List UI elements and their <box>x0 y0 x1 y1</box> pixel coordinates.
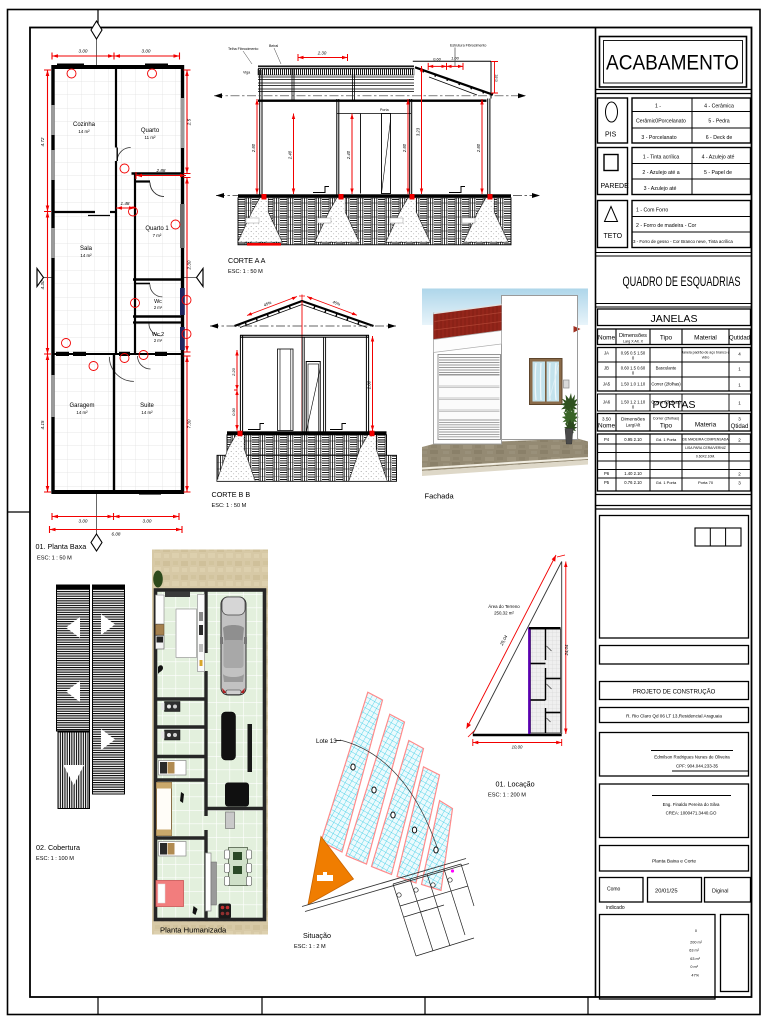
svg-text:Cozinha: Cozinha <box>73 122 96 128</box>
svg-text:ESC: 1 : 50 M: ESC: 1 : 50 M <box>228 269 263 275</box>
svg-text:ESC: 1 : 100 M: ESC: 1 : 100 M <box>36 856 74 862</box>
svg-text:Tipo: Tipo <box>660 335 673 342</box>
svg-text:14 m²: 14 m² <box>76 410 88 415</box>
svg-text:7 m²: 7 m² <box>153 233 162 238</box>
svg-text:Janela padrão de aço branco e: Janela padrão de aço branco e <box>681 351 729 355</box>
svg-text:0.60: 0.60 <box>433 57 442 62</box>
svg-text:DE MADEIRA COMPENSADA: DE MADEIRA COMPENSADA <box>683 438 730 442</box>
svg-text:2.80: 2.80 <box>402 143 407 153</box>
svg-text:ESC: 1 : 200 M: ESC: 1 : 200 M <box>488 793 526 799</box>
svg-text:63 m²: 63 m² <box>690 957 700 961</box>
svg-text:P4: P4 <box>604 437 610 442</box>
svg-text:PIS: PIS <box>605 132 617 139</box>
svg-text:Beiral: Beiral <box>269 44 278 48</box>
svg-text:5 - Pedra: 5 - Pedra <box>708 119 729 125</box>
svg-text:Quarto: Quarto <box>141 128 160 134</box>
svg-text:Correr (2folhas): Correr (2folhas) <box>651 382 681 387</box>
svg-text:Gd. 1 Porta: Gd. 1 Porta <box>656 480 677 485</box>
svg-text:Sala: Sala <box>80 246 93 252</box>
svg-text:JA5: JA5 <box>603 382 611 387</box>
svg-text:PAREDE: PAREDE <box>601 183 630 190</box>
svg-text:Planta Humanizada: Planta Humanizada <box>160 926 227 935</box>
svg-text:14 m²: 14 m² <box>78 129 90 134</box>
svg-text:ESC: 1 : 50 M: ESC: 1 : 50 M <box>212 503 247 509</box>
svg-text:1.50 1.0 1.10: 1.50 1.0 1.10 <box>621 382 646 387</box>
svg-text:3.00: 3.00 <box>79 49 88 54</box>
svg-text:01. Planta Baxa: 01. Planta Baxa <box>36 542 87 551</box>
svg-text:2.80: 2.80 <box>476 143 481 153</box>
svg-text:3.23: 3.23 <box>416 127 421 136</box>
svg-text:4 - Azulejo até: 4 - Azulejo até <box>702 155 735 161</box>
svg-text:0.81: 0.81 <box>495 74 499 81</box>
svg-text:20/01/25: 20/01/25 <box>655 889 678 895</box>
svg-text:R. Rio Claro Qd 06 LT 13,Resi: R. Rio Claro Qd 06 LT 13,Residencial Ara… <box>626 714 722 719</box>
svg-text:6 - Deck de: 6 - Deck de <box>706 135 733 141</box>
svg-text:Qutidad: Qutidad <box>729 336 750 342</box>
svg-text:2.80: 2.80 <box>367 380 372 390</box>
svg-text:CORTE B B: CORTE B B <box>212 490 251 499</box>
svg-text:JANELAS: JANELAS <box>651 313 698 325</box>
svg-text:Correr (2folhas): Correr (2folhas) <box>653 417 680 421</box>
svg-text:5 - Papel de: 5 - Papel de <box>704 170 732 176</box>
svg-text:Larg/Alt: Larg/Alt <box>626 423 641 428</box>
svg-text:1.40 2.10: 1.40 2.10 <box>624 471 642 476</box>
svg-text:Diginal: Diginal <box>712 889 728 895</box>
svg-text:2.40: 2.40 <box>346 150 351 160</box>
svg-text:Como: Como <box>607 887 621 893</box>
svg-text:2.30: 2.30 <box>317 51 327 56</box>
svg-text:1 - Tinta acrílica: 1 - Tinta acrílica <box>643 155 680 161</box>
svg-text:0.60X2.10M.: 0.60X2.10M. <box>696 455 715 459</box>
svg-text:PROJETO DE CONSTRUÇÃO: PROJETO DE CONSTRUÇÃO <box>633 689 716 696</box>
svg-text:2.88: 2.88 <box>156 168 166 173</box>
svg-text:CPF: 904.044.233-35: CPF: 904.044.233-35 <box>676 764 719 769</box>
svg-text:Tipo: Tipo <box>660 423 673 430</box>
svg-text:4.30: 4.30 <box>40 280 45 289</box>
svg-text:P5: P5 <box>604 480 610 485</box>
svg-text:2 m²: 2 m² <box>154 338 163 343</box>
svg-text:11 m²: 11 m² <box>145 135 156 140</box>
svg-text:2.30: 2.30 <box>187 260 192 270</box>
svg-text:24,04: 24,04 <box>564 644 569 656</box>
svg-text:02. Cobertura: 02. Cobertura <box>36 843 80 852</box>
svg-text:1.00: 1.00 <box>451 56 460 61</box>
svg-text:4.15: 4.15 <box>40 420 45 429</box>
svg-text:1 -: 1 - <box>655 104 661 110</box>
svg-text:1.48: 1.48 <box>121 201 130 206</box>
svg-text:Quarto 1: Quarto 1 <box>145 226 169 232</box>
svg-text:63 m²: 63 m² <box>689 949 699 953</box>
svg-text:0 m²: 0 m² <box>690 965 698 969</box>
svg-text:ACABAMENTO: ACABAMENTO <box>606 51 739 75</box>
svg-text:ESC: 1 : 50 M: ESC: 1 : 50 M <box>37 556 72 562</box>
svg-text:14 m²: 14 m² <box>141 410 153 415</box>
svg-text:01. Locação: 01. Locação <box>496 780 535 789</box>
svg-text:JB: JB <box>604 366 609 371</box>
svg-text:6.08: 6.08 <box>112 532 121 537</box>
svg-text:2.40: 2.40 <box>288 150 293 160</box>
svg-text:10,00: 10,00 <box>512 745 523 750</box>
svg-text:0.90: 0.90 <box>231 407 236 416</box>
svg-text:0.76 2.10: 0.76 2.10 <box>624 480 642 485</box>
svg-text:QUADRO DE ESQUADRIAS: QUADRO DE ESQUADRIAS <box>623 274 741 289</box>
svg-text:Área do Terreno: Área do Terreno <box>488 604 520 609</box>
svg-text:Basculante: Basculante <box>656 366 677 371</box>
svg-text:200 m²: 200 m² <box>690 941 703 945</box>
svg-text:3.50: 3.50 <box>602 417 611 422</box>
svg-text:Cerâmic0Porcelanato: Cerâmic0Porcelanato <box>636 119 686 125</box>
svg-text:Viga: Viga <box>243 71 250 75</box>
svg-text:3.00: 3.00 <box>142 49 151 54</box>
svg-text:Eng. Finaldo Pereira do Silva: Eng. Finaldo Pereira do Silva <box>663 802 720 807</box>
svg-text:2.5: 2.5 <box>187 118 192 126</box>
svg-text:2.20: 2.20 <box>231 367 236 377</box>
svg-text:14 m²: 14 m² <box>80 253 92 258</box>
svg-text:indicado: indicado <box>606 905 625 911</box>
svg-text:3.00: 3.00 <box>143 519 152 524</box>
svg-text:JA6: JA6 <box>603 400 611 405</box>
svg-text:Material: Material <box>694 335 717 342</box>
svg-text:Gd. 1 Porta: Gd. 1 Porta <box>656 437 677 442</box>
svg-text:7.30: 7.30 <box>187 419 192 428</box>
svg-text:Porta: Porta <box>380 108 389 112</box>
svg-text:Planta Baixa e Corte: Planta Baixa e Corte <box>652 859 696 865</box>
svg-text:0: 0 <box>695 929 697 933</box>
svg-text:3 - Forro de gesso - Cor Branc: 3 - Forro de gesso - Cor Branco neve, Ti… <box>633 239 733 244</box>
svg-text:CORTE A A: CORTE A A <box>228 256 266 265</box>
svg-text:0.95 2.10: 0.95 2.10 <box>624 437 642 442</box>
svg-text:Garagem: Garagem <box>69 403 94 409</box>
svg-text:Fachada: Fachada <box>425 492 455 501</box>
svg-text:Larg X Alt. X: Larg X Alt. X <box>623 340 644 344</box>
svg-text:Nome: Nome <box>598 423 615 430</box>
svg-text:4.72: 4.72 <box>40 137 45 146</box>
svg-text:Nome: Nome <box>598 335 615 342</box>
svg-text:vidro: vidro <box>702 356 710 360</box>
svg-text:JA: JA <box>604 351 609 356</box>
svg-text:3 - Porcelanato: 3 - Porcelanato <box>641 135 676 141</box>
svg-text:PORTAS: PORTAS <box>653 399 696 411</box>
svg-text:250,32 m²: 250,32 m² <box>494 611 514 616</box>
svg-text:Situação: Situação <box>303 931 331 940</box>
svg-text:Materia: Materia <box>695 422 717 429</box>
svg-text:4 - Cerâmica: 4 - Cerâmica <box>704 104 734 110</box>
svg-text:Telha Fibrocimento: Telha Fibrocimento <box>228 47 258 51</box>
svg-text:CREA: 1000471.3440.GO: CREA: 1000471.3440.GO <box>666 811 717 816</box>
svg-text:Estrutura Fibrocimento: Estrutura Fibrocimento <box>450 44 486 48</box>
svg-text:LISA PARA CERA/VERNIZ: LISA PARA CERA/VERNIZ <box>685 446 726 450</box>
svg-text:ESC: 1 : 2 M: ESC: 1 : 2 M <box>294 944 326 950</box>
svg-text:3 - Azulejo até: 3 - Azulejo até <box>644 186 677 192</box>
svg-text:Porta 70: Porta 70 <box>698 480 714 485</box>
svg-text:Qtidad: Qtidad <box>731 424 749 430</box>
svg-text:3.00: 3.00 <box>79 519 88 524</box>
svg-text:P6: P6 <box>604 471 610 476</box>
svg-text:1 - Com Forro: 1 - Com Forro <box>636 208 668 214</box>
svg-text:2 - Azulejo até a: 2 - Azulejo até a <box>642 170 679 176</box>
svg-text:2.80: 2.80 <box>251 143 256 153</box>
svg-text:Suite: Suite <box>140 403 154 409</box>
svg-text:2 m²: 2 m² <box>154 305 163 310</box>
svg-text:Dimensões: Dimensões <box>619 333 647 339</box>
svg-text:Edmilson Rodrigues Nunes de Ol: Edmilson Rodrigues Nunes de Oliveira <box>654 755 730 760</box>
svg-text:Lote 13: Lote 13 <box>316 738 337 745</box>
svg-text:2 - Forro de madeira - Cor: 2 - Forro de madeira - Cor <box>636 223 697 229</box>
svg-text:47%: 47% <box>691 974 699 978</box>
svg-text:TETO: TETO <box>604 233 623 240</box>
